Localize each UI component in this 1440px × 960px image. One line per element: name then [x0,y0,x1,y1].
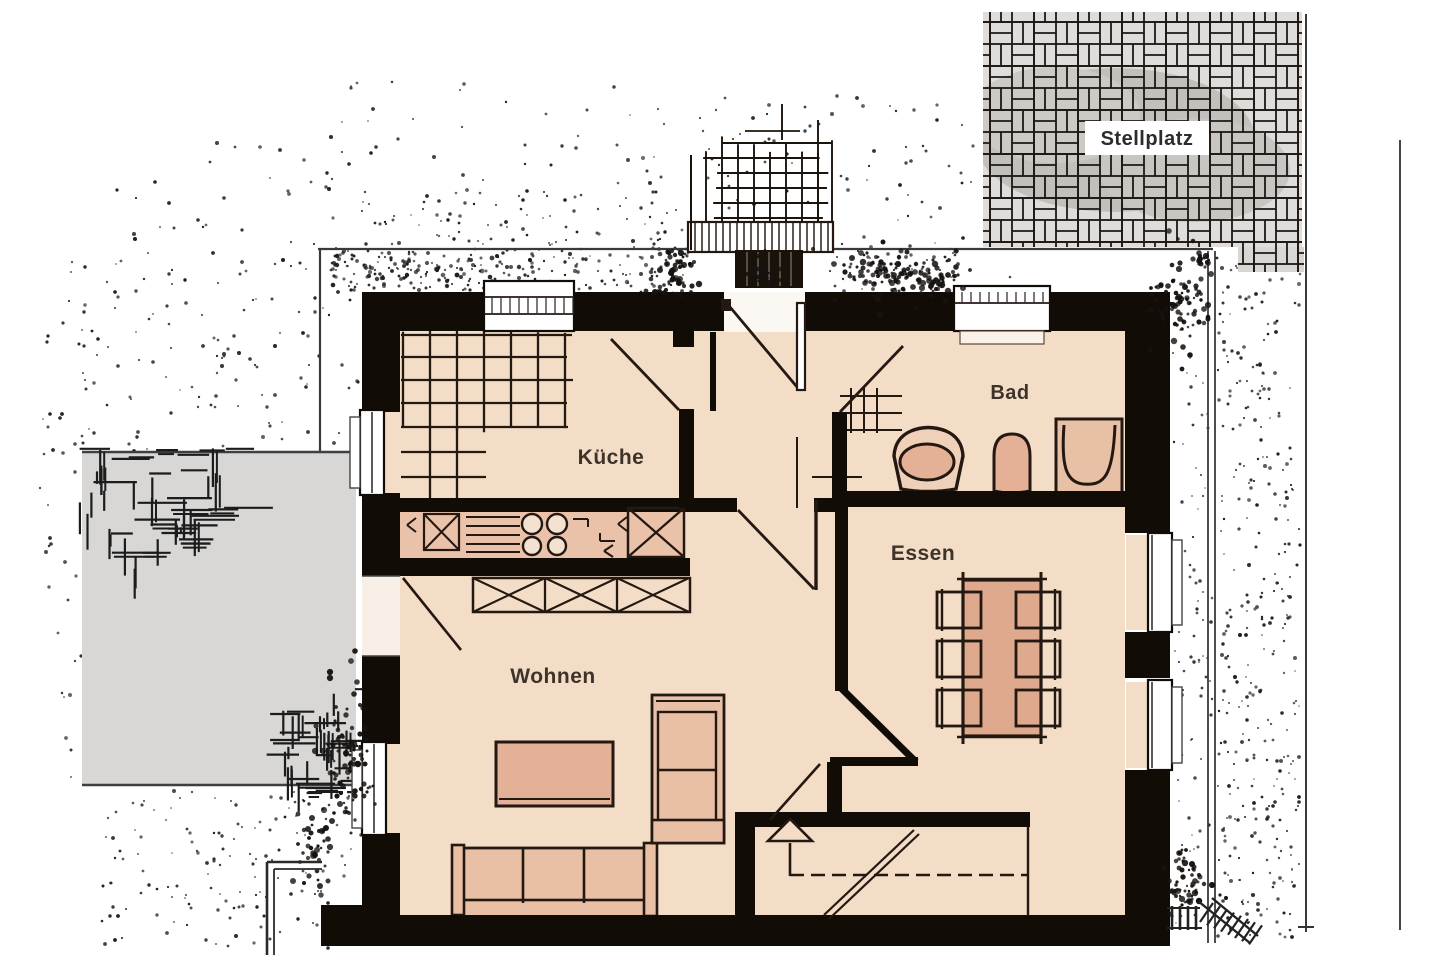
svg-text:Bad: Bad [990,382,1029,404]
svg-text:Wohnen: Wohnen [510,665,595,688]
svg-text:Essen: Essen [891,542,955,565]
svg-text:Küche: Küche [578,446,645,469]
svg-text:Stellplatz: Stellplatz [1101,128,1194,150]
